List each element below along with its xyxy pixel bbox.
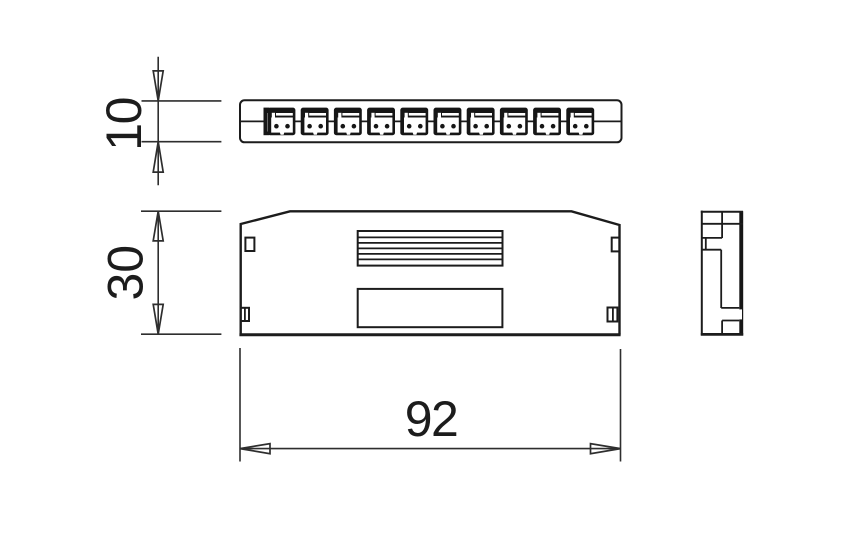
svg-text:30: 30 xyxy=(98,245,154,301)
svg-text:0: 0 xyxy=(96,97,152,125)
svg-text:92: 92 xyxy=(405,391,458,447)
svg-text:1: 1 xyxy=(96,123,152,151)
